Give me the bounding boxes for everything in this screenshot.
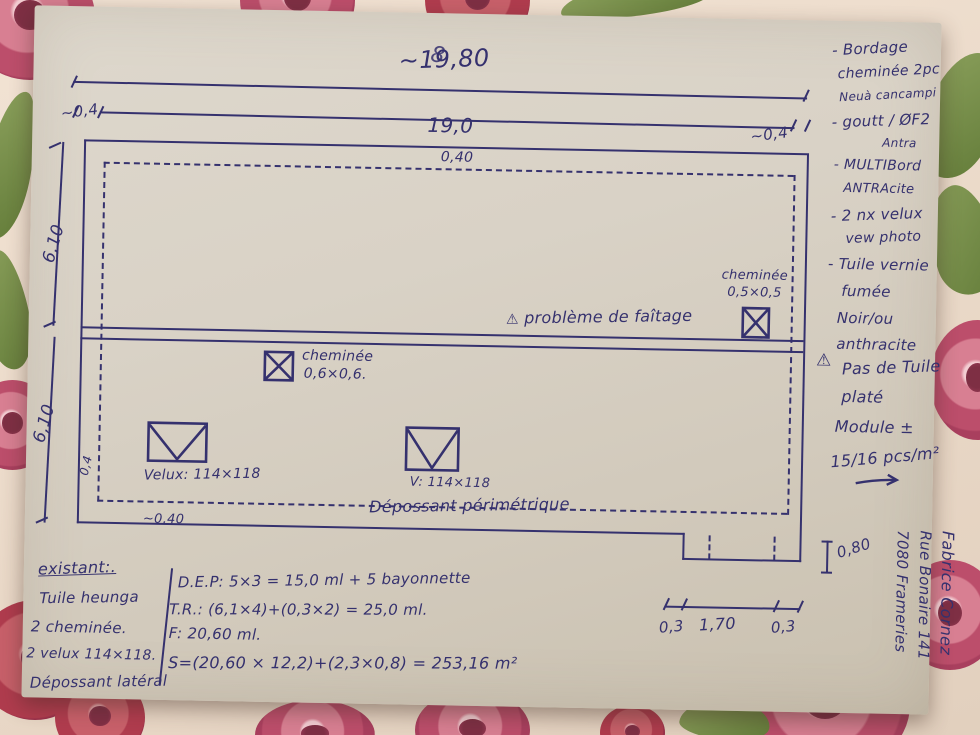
chimney-symbol (740, 306, 771, 340)
dim-notch-depth: 0,80 (835, 535, 873, 562)
dim-left-bottom: 0,4 (77, 454, 95, 477)
existing-item-1: Tuile heunga (39, 588, 139, 608)
dimension-tick (797, 600, 804, 613)
dimension-line-notch (665, 606, 800, 611)
signature-block: Fabrice Cornez Rue Bonaire 141 7080 Fram… (886, 530, 960, 735)
calc-dep: D.E.P: 5×3 = 15,0 ml + 5 bayonnette (178, 569, 471, 592)
note-gouttiere-2: Antra (882, 136, 917, 151)
dimension-tick (802, 89, 809, 102)
existing-item-4: Dépossant latéral (30, 672, 168, 692)
dimension-serif (821, 572, 832, 574)
dim-notch-right: 0,3 (770, 617, 796, 637)
perimeter-note: Dépossant périmétrique (369, 494, 570, 516)
dimension-line-notch-depth (826, 541, 829, 573)
note-bordage-3: Neuà cancampi (839, 85, 937, 104)
dimension-tick (681, 598, 688, 611)
dim-top-offset: 0,40 (441, 149, 474, 166)
note-tuile: - Tuile vernie (828, 255, 929, 275)
signature-street: Rue Bonaire 141 (910, 530, 937, 735)
note-velux-2: vew photo (845, 228, 921, 247)
ridge-warning-note: ⚠ problème de faîtage (506, 306, 693, 328)
dim-left-overhang: ~0,4 (60, 100, 100, 122)
note-pas-de-tuile-4: 15/16 pcs/m² (830, 443, 941, 471)
flower-decoration (600, 705, 665, 735)
note-pas-de-tuile: Pas de Tuile (842, 356, 941, 378)
note-tuile-2: fumée (841, 282, 891, 301)
note-gouttiere: - goutt / ØF2 (831, 110, 930, 131)
chimney-mid-label: cheminée (302, 348, 374, 365)
existing-title: existant:. (38, 557, 117, 579)
dim-inner-width: 19,0 (427, 113, 473, 138)
dimension-tick (773, 600, 780, 613)
roof-edge-right (799, 153, 809, 562)
ridge-note-text: problème de faîtage (524, 306, 693, 328)
dashed-notch-left (708, 535, 710, 559)
note-velux: - 2 nx velux (831, 204, 923, 225)
dim-left-lower: 6,10 (29, 402, 59, 445)
note-pas-de-tuile-2: platé (841, 387, 883, 407)
note-bordage: - Bordage (832, 37, 909, 59)
calc-f: F: 20,60 ml. (169, 624, 262, 644)
dimension-tick (804, 119, 811, 132)
roof-notch-bottom (682, 558, 801, 562)
note-tuile-4: anthracite (836, 335, 916, 355)
note-pas-de-tuile-3: Module ± (835, 417, 914, 438)
dimension-tick (35, 517, 48, 524)
dimension-tick (49, 142, 62, 149)
chimney-symbol (263, 350, 296, 383)
dim-notch-mid: 1,70 (699, 614, 737, 635)
chimney-mid-size: 0,6×0,6. (304, 366, 367, 383)
dashed-perimeter-right (787, 175, 796, 515)
dimension-line-total (73, 81, 807, 100)
flower-decoration (930, 320, 980, 440)
note-bordage-2: cheminée 2pc (837, 61, 940, 82)
warning-icon: ⚠ (816, 350, 832, 370)
existing-item-2: 2 cheminée. (31, 617, 127, 637)
velux-right-label: V: 114×118 (409, 475, 490, 492)
chimney-right-size: 0,5×0,5 (727, 285, 782, 301)
dashed-notch-right (773, 537, 775, 561)
roof-notch-step (682, 533, 685, 560)
calc-tr: T.R.: (6,1×4)+(0,3×2) = 25,0 ml. (169, 600, 428, 618)
note-multibord-2: ANTRAcite (843, 181, 914, 197)
velux-symbol (404, 426, 461, 473)
warning-icon: ⚠ (506, 312, 519, 328)
note-tuile-3: Noir/ou (837, 309, 894, 328)
dim-left-upper: 6,10 (39, 222, 69, 265)
sketch-paper: ~19,80 8 19,0 ~0,4 ~0,4 0,40 6,10 (21, 5, 941, 714)
dashed-perimeter-left (97, 162, 106, 502)
photo-scene: { "dims": { "total_width": "~19,80", "ov… (0, 0, 980, 735)
arrow-right-icon (854, 473, 900, 490)
dim-notch-left: 0,3 (658, 617, 684, 637)
chimney-right-label: cheminée (722, 268, 789, 284)
existing-item-3: 2 velux 114×118. (26, 645, 156, 663)
dimension-serif (822, 541, 833, 543)
velux-symbol (146, 421, 209, 464)
note-multibord: - MULTIBord (834, 157, 922, 175)
flower-decoration (255, 700, 375, 735)
dim-bottom-left: ~0,40 (143, 512, 185, 528)
signature-name: Fabrice Cornez (933, 531, 960, 735)
calc-surface: S=(20,60 × 12,2)+(2,3×0,8) = 253,16 m² (168, 653, 517, 673)
dim-right-overhang: ~0,4 (749, 123, 789, 145)
signature-city: 7080 Frameries (887, 530, 914, 735)
dimension-tick (790, 119, 797, 132)
velux-left-label: Velux: 114×118 (144, 466, 261, 484)
dimension-tick (663, 598, 670, 611)
